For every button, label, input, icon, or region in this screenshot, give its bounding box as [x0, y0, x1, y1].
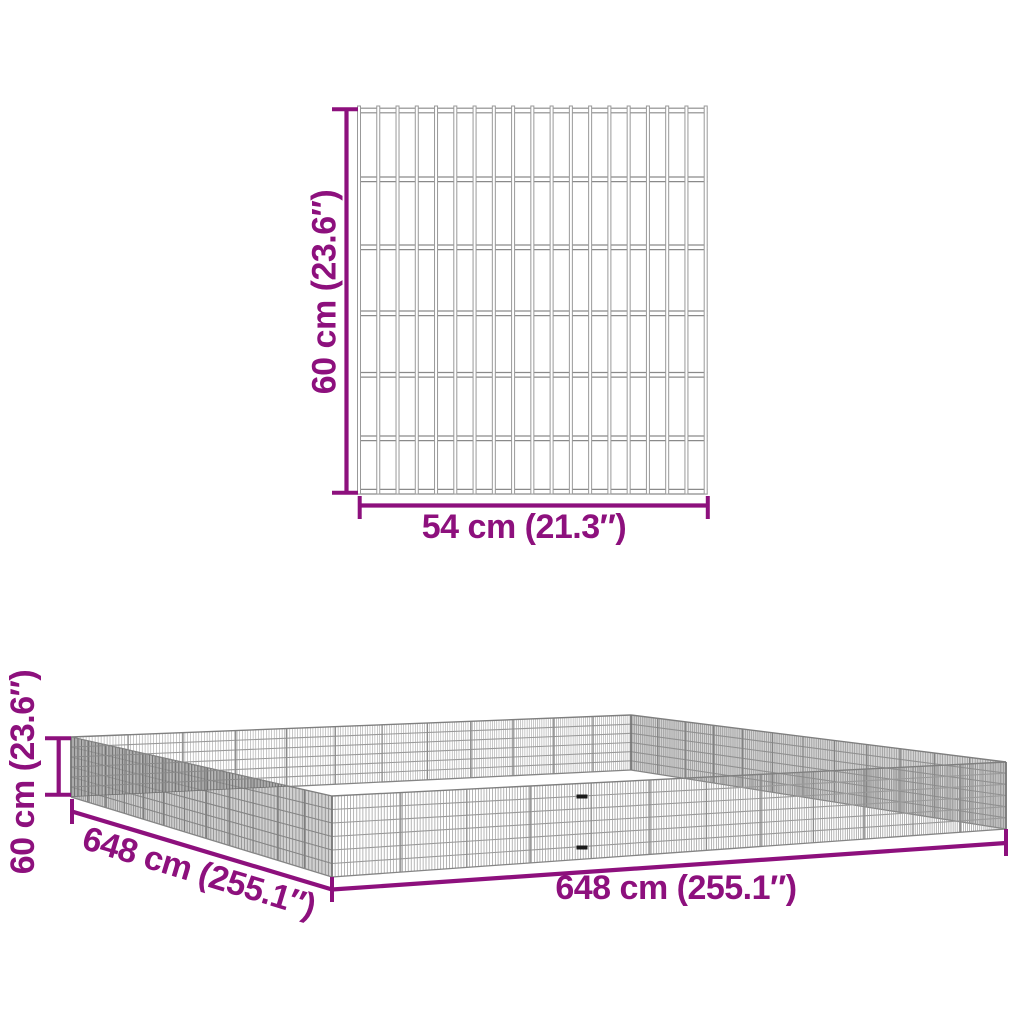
svg-text:60 cm (23.6″): 60 cm (23.6″): [4, 670, 42, 874]
svg-text:60 cm (23.6″): 60 cm (23.6″): [306, 190, 344, 394]
svg-text:54 cm (21.3″): 54 cm (21.3″): [422, 508, 626, 546]
svg-text:648 cm (255.1″): 648 cm (255.1″): [555, 869, 796, 907]
